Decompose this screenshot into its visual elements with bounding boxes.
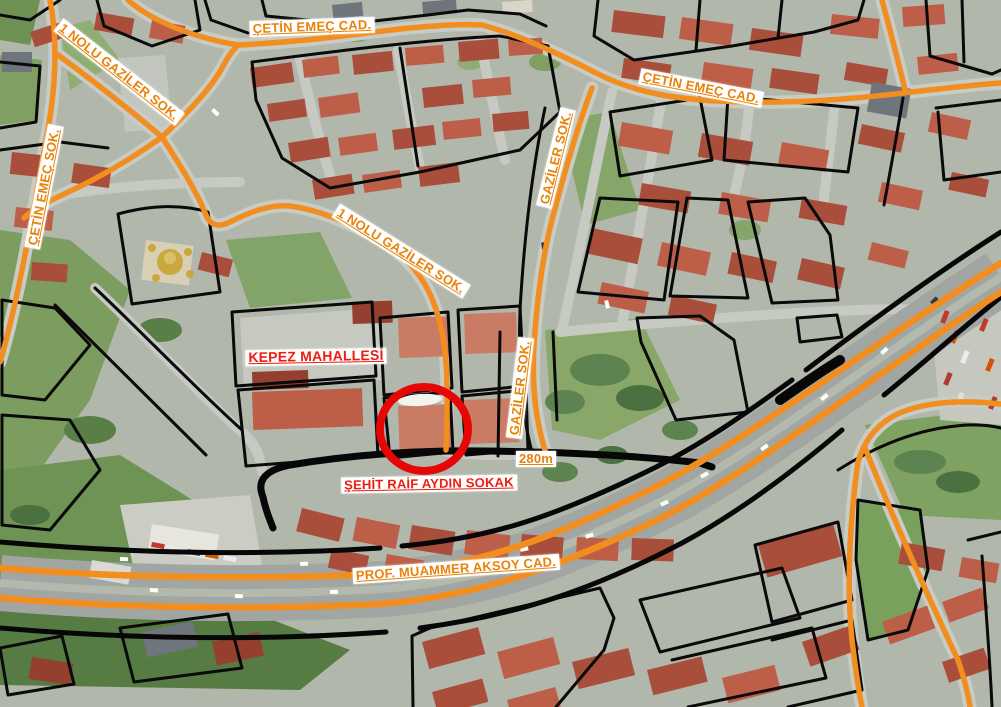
distance-label-280m: 280m — [516, 451, 556, 467]
mosque — [141, 240, 194, 286]
road-label-sehit-raif-aydin-sokak: ŞEHİT RAİF AYDIN SOKAK — [341, 474, 517, 493]
aerial-map: ÇETİN EMEÇ CAD. 1 NOLU GAZİLER SOK. ÇETİ… — [0, 0, 1001, 707]
district-label-kepez-mahallesi: KEPEZ MAHALLESİ — [245, 348, 386, 366]
